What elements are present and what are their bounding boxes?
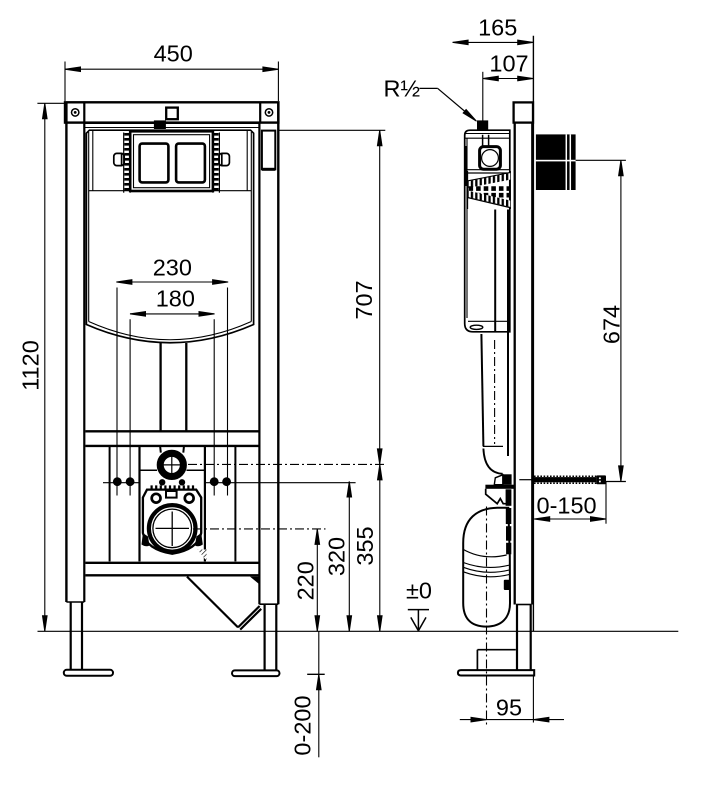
svg-text:220: 220 bbox=[292, 561, 318, 600]
svg-text:674: 674 bbox=[599, 305, 625, 344]
svg-text:107: 107 bbox=[489, 51, 528, 77]
svg-text:180: 180 bbox=[156, 285, 195, 311]
svg-text:1120: 1120 bbox=[17, 340, 43, 391]
svg-text:±0: ±0 bbox=[406, 578, 432, 604]
svg-text:0-150: 0-150 bbox=[537, 493, 597, 519]
svg-text:R½: R½ bbox=[384, 76, 421, 102]
svg-text:230: 230 bbox=[153, 255, 192, 281]
svg-text:165: 165 bbox=[478, 15, 517, 41]
svg-text:707: 707 bbox=[351, 280, 377, 319]
svg-text:320: 320 bbox=[324, 537, 350, 576]
svg-text:355: 355 bbox=[352, 526, 378, 565]
svg-text:450: 450 bbox=[154, 41, 193, 67]
svg-text:95: 95 bbox=[496, 695, 522, 721]
svg-text:0-200: 0-200 bbox=[290, 695, 316, 755]
